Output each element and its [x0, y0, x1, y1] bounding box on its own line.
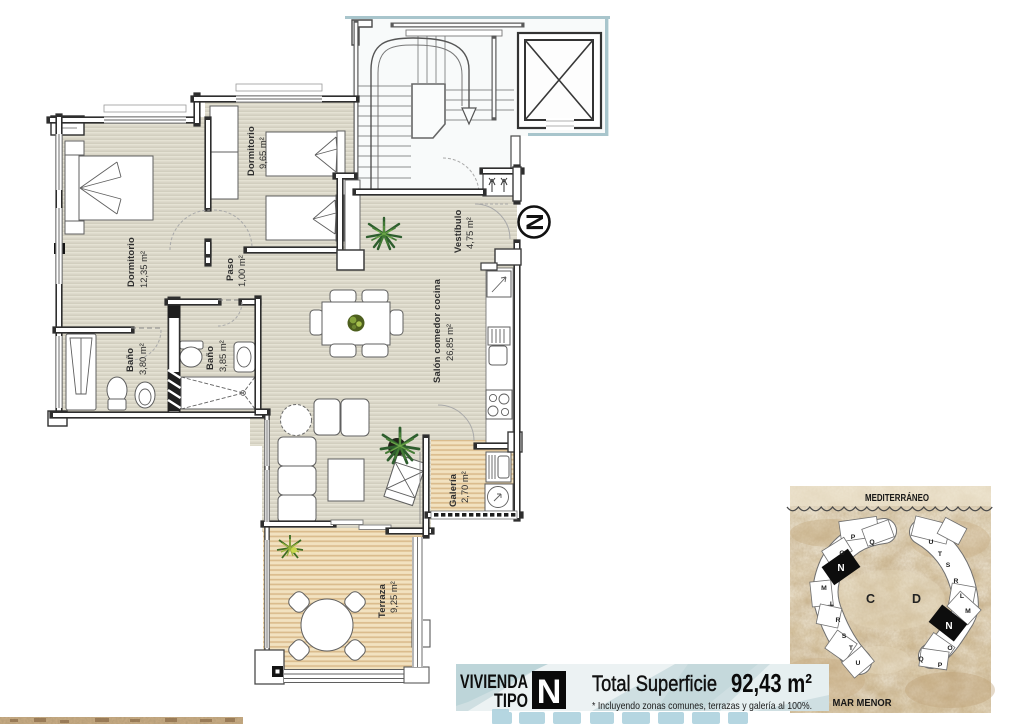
svg-text:MEDITERRÁNEO: MEDITERRÁNEO	[865, 491, 929, 504]
svg-text:N: N	[837, 563, 844, 574]
svg-text:D: D	[912, 592, 921, 606]
svg-text:N: N	[945, 621, 952, 632]
svg-text:Q: Q	[918, 656, 923, 663]
svg-text:Baño: Baño	[204, 346, 215, 370]
svg-text:P: P	[938, 662, 943, 669]
svg-text:9,65 m²: 9,65 m²	[257, 137, 268, 169]
svg-text:R: R	[954, 578, 959, 585]
svg-text:Total Superficie: Total Superficie	[592, 671, 717, 696]
svg-text:Salón comedor cocina: Salón comedor cocina	[431, 278, 442, 383]
svg-text:S: S	[946, 562, 951, 569]
svg-text:Vestíbulo: Vestíbulo	[452, 209, 463, 253]
svg-text:O: O	[947, 645, 952, 652]
svg-text:TIPO: TIPO	[494, 691, 528, 712]
svg-text:Paso: Paso	[224, 258, 235, 281]
svg-text:M: M	[821, 585, 827, 592]
svg-text:3,80 m²: 3,80 m²	[137, 343, 148, 375]
svg-text:O: O	[839, 550, 844, 557]
svg-text:N: N	[521, 213, 548, 230]
svg-text:* Incluyendo zonas comunes, te: * Incluyendo zonas comunes, terrazas y g…	[592, 700, 812, 712]
svg-text:1,00 m²: 1,00 m²	[236, 255, 247, 287]
svg-text:2,70 m²: 2,70 m²	[459, 471, 470, 503]
svg-text:R: R	[836, 617, 841, 624]
svg-text:26,85 m²: 26,85 m²	[444, 324, 455, 361]
svg-text:VIVIENDA: VIVIENDA	[460, 672, 528, 693]
svg-text:C: C	[866, 592, 875, 606]
svg-text:12,35 m²: 12,35 m²	[138, 251, 149, 288]
svg-text:N: N	[537, 673, 562, 711]
svg-text:L: L	[830, 601, 834, 608]
svg-text:Dormitorio: Dormitorio	[245, 126, 256, 176]
svg-text:Terraza: Terraza	[376, 583, 387, 618]
svg-text:P: P	[851, 534, 856, 541]
svg-text:S: S	[842, 633, 847, 640]
svg-text:Baño: Baño	[124, 348, 135, 372]
svg-text:L: L	[960, 593, 964, 600]
svg-text:U: U	[856, 660, 861, 667]
svg-text:U: U	[929, 539, 934, 546]
svg-text:4,75 m²: 4,75 m²	[464, 217, 475, 249]
svg-text:92,43 m²: 92,43 m²	[731, 668, 812, 698]
svg-text:Q: Q	[869, 539, 874, 546]
svg-text:MAR MENOR: MAR MENOR	[833, 698, 893, 709]
svg-text:Dormitorio: Dormitorio	[125, 237, 136, 287]
svg-text:Galería: Galería	[447, 473, 458, 507]
svg-text:3,85 m²: 3,85 m²	[217, 340, 228, 372]
svg-text:M: M	[965, 608, 971, 615]
svg-text:9,25 m²: 9,25 m²	[388, 581, 399, 613]
